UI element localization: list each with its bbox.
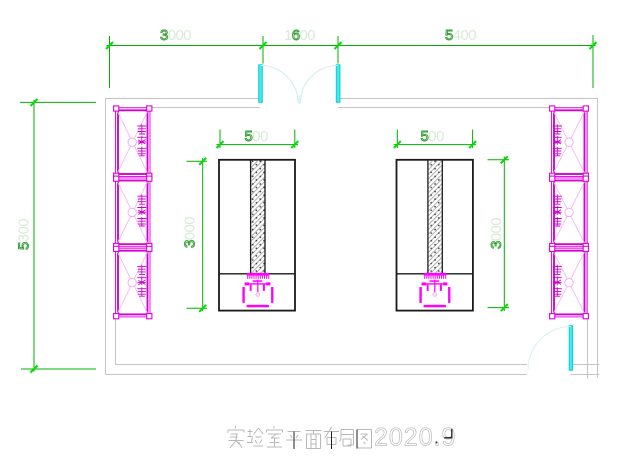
svg-text:5400: 5400 bbox=[445, 27, 476, 44]
svg-text:3000: 3000 bbox=[182, 217, 199, 248]
svg-text:3000: 3000 bbox=[488, 218, 505, 249]
svg-text:1600: 1600 bbox=[284, 27, 315, 44]
svg-text:3000: 3000 bbox=[160, 27, 191, 44]
svg-text:2020.9: 2020.9 bbox=[374, 423, 456, 451]
svg-text:5300: 5300 bbox=[16, 219, 33, 250]
svg-text:500: 500 bbox=[421, 128, 444, 145]
svg-text:500: 500 bbox=[245, 128, 268, 145]
